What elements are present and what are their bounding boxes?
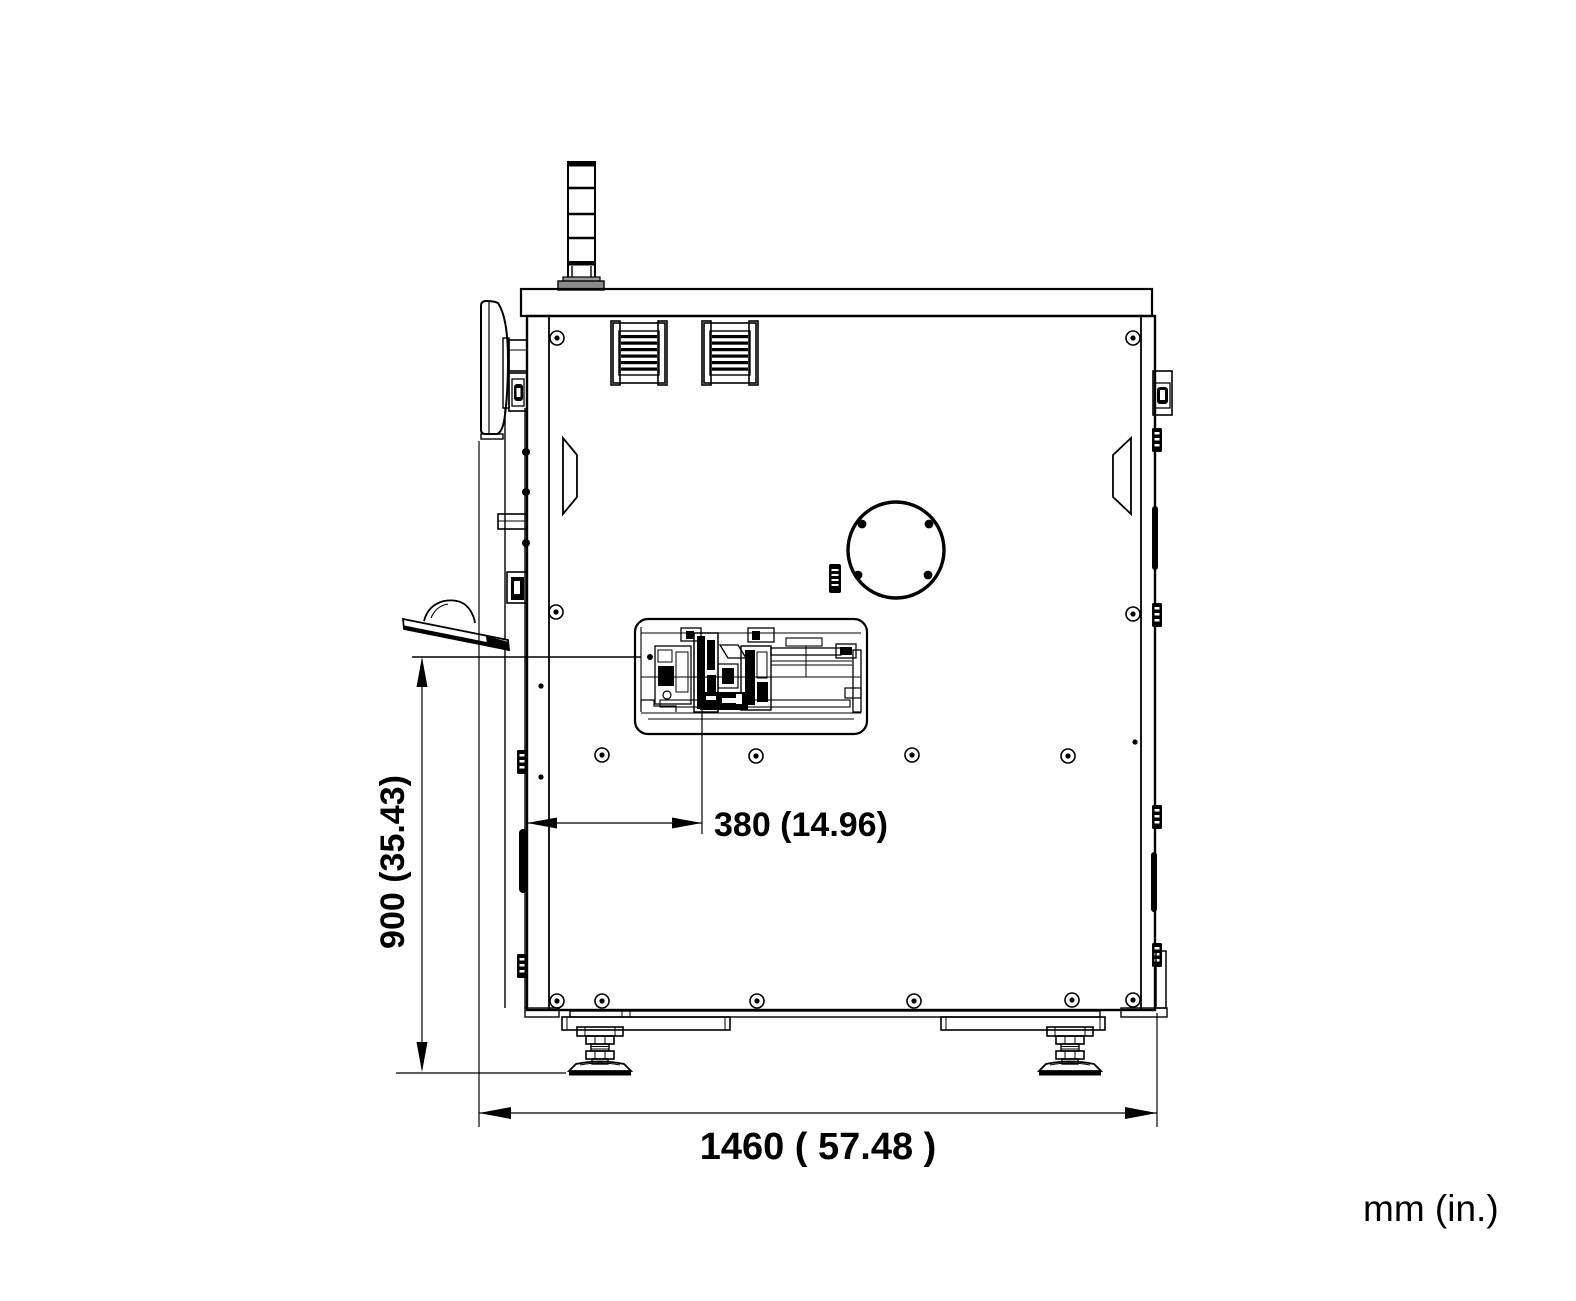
machine-body [521,289,1155,1010]
tray-mount [507,572,527,603]
front-stud [522,448,530,456]
recessed-handle-left [563,438,577,514]
hinge-icon [1152,428,1162,452]
dimension-offset-label: 380 (14.96) [714,806,888,844]
side-panel [527,316,1155,1010]
door-edge-right [1151,852,1157,912]
front-stud [522,539,530,547]
fan-opening [848,502,944,598]
hinge-icon [1152,805,1162,829]
hinge-icon [517,954,527,978]
front-stud [522,488,530,496]
dimension-mechanism-offset: 380 (14.96) [527,692,888,844]
monitor [481,301,508,439]
io-connector [829,564,841,593]
panel-screws [549,331,1140,1008]
front-bar [498,514,527,529]
dimension-height-label: 900 (35.43) [374,775,412,949]
signal-tower [558,162,604,290]
hinge-icon [1152,943,1162,967]
recessed-handle-right [1113,438,1131,514]
mouse [424,600,475,623]
machine-side-view-drawing: 900 (35.43) 380 (14.96) 1460 ( 57.48 ) m… [0,0,1576,1301]
vent-left [611,321,667,385]
vent-right [702,321,758,385]
leveling-foot-right [1039,1027,1101,1076]
door-latch-left [509,371,527,411]
hinge-icon [517,750,527,774]
door-edge-right [1152,506,1158,570]
units-label: mm (in.) [1363,1188,1499,1229]
dimension-depth-label: 1460 ( 57.48 ) [700,1126,937,1168]
hinge-icon [1152,603,1162,627]
keyboard-tray [403,600,509,651]
leveling-foot-left [569,1027,631,1076]
top-panel [521,289,1152,316]
door-edge-left [519,829,527,893]
